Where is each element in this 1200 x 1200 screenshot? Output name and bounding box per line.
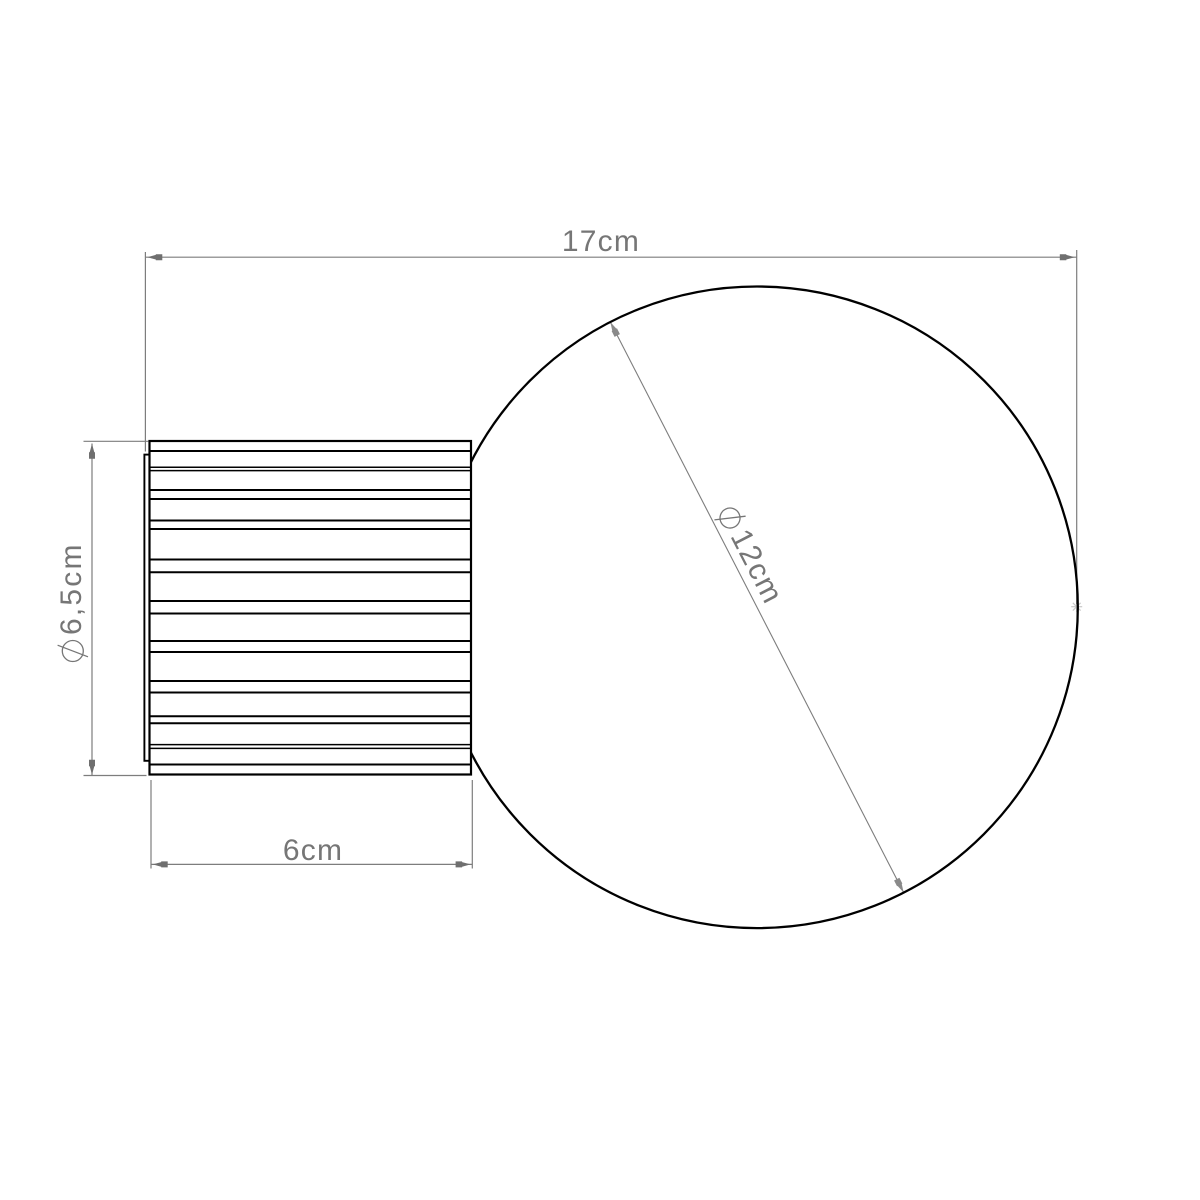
svg-text:17cm: 17cm (562, 225, 640, 258)
svg-text:6,5cm: 6,5cm (55, 542, 88, 635)
svg-text:6cm: 6cm (283, 834, 343, 867)
